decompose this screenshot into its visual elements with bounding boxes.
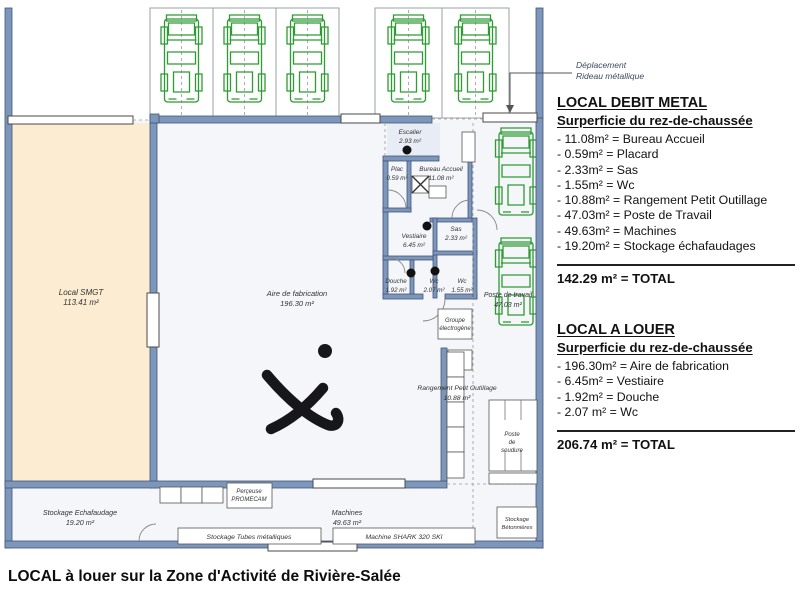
wall-douche-wc — [410, 260, 414, 298]
label-stockage-echaf: Stockage Echafaudage — [43, 508, 117, 517]
panel1-item: - 2.33m² = Sas — [557, 163, 797, 178]
label-sas: Sas — [450, 226, 462, 233]
panel-local-a-louer: LOCAL A LOUER Surperficie du rez-de-chau… — [557, 322, 797, 452]
label-machines-area: 49.63 m² — [333, 518, 362, 527]
label-shark: Machine SHARK 320 SKI — [365, 534, 442, 541]
roller-door — [341, 114, 380, 123]
roller-door — [147, 293, 159, 347]
roller-door — [8, 116, 133, 124]
groupe-electrogene-box — [438, 309, 472, 339]
label-perceuse-2: PROMECAM — [231, 497, 266, 503]
column-dot — [423, 222, 432, 231]
label-wc2: Wc — [458, 278, 468, 285]
workbench — [160, 487, 181, 503]
label-groupe-1: Groupe — [445, 318, 466, 324]
panel2-item: - 196.30m² = Aire de fabrication — [557, 359, 797, 374]
label-bureau: Bureau Accueil — [419, 166, 463, 173]
wall-sas-wc — [433, 251, 477, 255]
label-wc1-area: 2.07 m² — [423, 287, 446, 294]
wall-cluster-right — [473, 218, 477, 299]
panel1-item: - 19.20m² = Stockage échafaudages — [557, 239, 797, 254]
column-dot — [431, 267, 440, 276]
label-poste-travail-area: 47.03 m² — [494, 302, 522, 309]
panel1-item: - 49.63m² = Machines — [557, 224, 797, 239]
label-smgt-area: 113.41 m² — [63, 298, 99, 307]
label-smgt: Local SMGT — [59, 288, 105, 297]
roller-door-deplacement — [483, 113, 537, 122]
perceuse-promecam-box — [227, 483, 272, 508]
label-soudure-1: Poste — [504, 432, 520, 438]
panel1-heading: LOCAL DEBIT METAL — [557, 95, 797, 111]
shelf-unit — [447, 452, 464, 478]
label-stockage-echaf-area: 19.20 m² — [66, 518, 95, 527]
panel1-item: - 11.08m² = Bureau Accueil — [557, 132, 797, 147]
wall-cluster-bottom-a — [383, 294, 423, 299]
wall-cluster-bottom-b — [445, 294, 477, 299]
wall-plac-bureau — [407, 161, 411, 212]
label-soudure-2: de — [509, 440, 516, 446]
desk-return — [429, 186, 446, 198]
parking-row-right — [375, 8, 509, 118]
label-plac: Plac — [391, 166, 404, 173]
label-soudure-3: soudure — [501, 448, 523, 454]
label-betonnieres-1: Stockage — [505, 517, 530, 523]
label-aire-area: 196.30 m² — [280, 299, 314, 308]
parking-row-left — [150, 8, 339, 118]
annotation-line2: Rideau métallique — [576, 71, 644, 82]
wall-smgt-b — [150, 345, 157, 488]
wall-top-a — [150, 116, 343, 123]
total-rule — [557, 430, 795, 432]
label-poste-travail: Poste de travail — [484, 292, 533, 299]
wall-plac-bottom — [383, 208, 411, 212]
wall-bureau-right — [468, 161, 472, 221]
column-dot — [403, 146, 412, 155]
label-vestiaire: Vestiaire — [401, 233, 426, 240]
label-escalier: Escalier — [398, 129, 422, 136]
total-rule — [557, 264, 795, 266]
wall-top-b — [380, 116, 432, 123]
panel-local-debit-metal: LOCAL DEBIT METAL Surperficie du rez-de-… — [557, 95, 797, 286]
label-perceuse-1: Perçeuse — [236, 489, 262, 495]
panel2-total: 206.74 m² = TOTAL — [557, 437, 797, 452]
roller-door — [313, 479, 405, 488]
page-title: LOCAL à louer sur la Zone d'Activité de … — [8, 568, 401, 586]
label-escalier-area: 2.93 m² — [398, 138, 422, 145]
panel1-item: - 47.03m² = Poste de Travail — [557, 208, 797, 223]
label-vestiaire-area: 6.45 m² — [403, 242, 426, 249]
floor-plan-sheet: Local SMGT 113.41 m² Aire de fabrication… — [0, 0, 800, 600]
workbench — [202, 487, 223, 503]
panel2-item: - 2.07 m² = Wc — [557, 405, 797, 420]
panel2-heading: LOCAL A LOUER — [557, 322, 797, 338]
shelf-unit — [447, 352, 464, 377]
wall-smgt-a — [150, 123, 157, 295]
panel1-item: - 10.88m² = Rangement Petit Outillage — [557, 193, 797, 208]
label-groupe-2: électrogène — [439, 326, 471, 332]
marker-dot — [318, 344, 332, 358]
wall-strip — [441, 348, 447, 481]
shelf-unit — [447, 402, 464, 427]
deplacement-annotation: Déplacement Rideau métallique — [576, 60, 644, 81]
wall-right-top — [536, 8, 543, 118]
label-rangement-area: 10.88 m² — [444, 395, 472, 402]
label-rangement: Rangement Petit Outillage — [417, 385, 497, 392]
panel1-subheading: Surperficie du rez-de-chaussée — [557, 113, 797, 128]
label-betonnieres-2: Bétonnières — [502, 525, 533, 531]
column-dot — [407, 269, 416, 278]
label-douche-area: 1.92 m² — [386, 287, 408, 294]
wall-vestiaire-sas — [433, 218, 437, 298]
label-tubes: Stockage Tubes métalliques — [207, 534, 292, 541]
panel1-item: - 0.59m² = Placard — [557, 147, 797, 162]
label-douche: Douche — [385, 278, 407, 285]
label-wc2-area: 1.55 m² — [452, 287, 474, 294]
label-sas-area: 2.33 m² — [444, 235, 468, 242]
cabinet — [462, 132, 475, 162]
label-plac-area: 0.59 m² — [387, 175, 409, 182]
panel2-item: - 6.45m² = Vestiaire — [557, 374, 797, 389]
label-wc1: Wc — [430, 278, 440, 285]
soudure-shelf — [489, 473, 537, 484]
wall-left — [5, 8, 12, 548]
floor-plan-drawing: Local SMGT 113.41 m² Aire de fabrication… — [0, 0, 800, 600]
panel1-item: - 1.55m² = Wc — [557, 178, 797, 193]
label-aire: Aire de fabrication — [266, 289, 327, 298]
shelf-unit — [447, 427, 464, 452]
wall-post — [150, 114, 159, 123]
annotation-line1: Déplacement — [576, 60, 644, 71]
label-bureau-area: 11.08 m² — [428, 175, 454, 182]
label-machines: Machines — [332, 508, 363, 517]
panel1-total: 142.29 m² = TOTAL — [557, 271, 797, 286]
workbench — [181, 487, 202, 503]
wall-escalier — [383, 156, 439, 161]
pan2-item: - 1.92m² = Douche — [557, 390, 797, 405]
panel2-subheading: Surperficie du rez-de-chaussée — [557, 340, 797, 355]
